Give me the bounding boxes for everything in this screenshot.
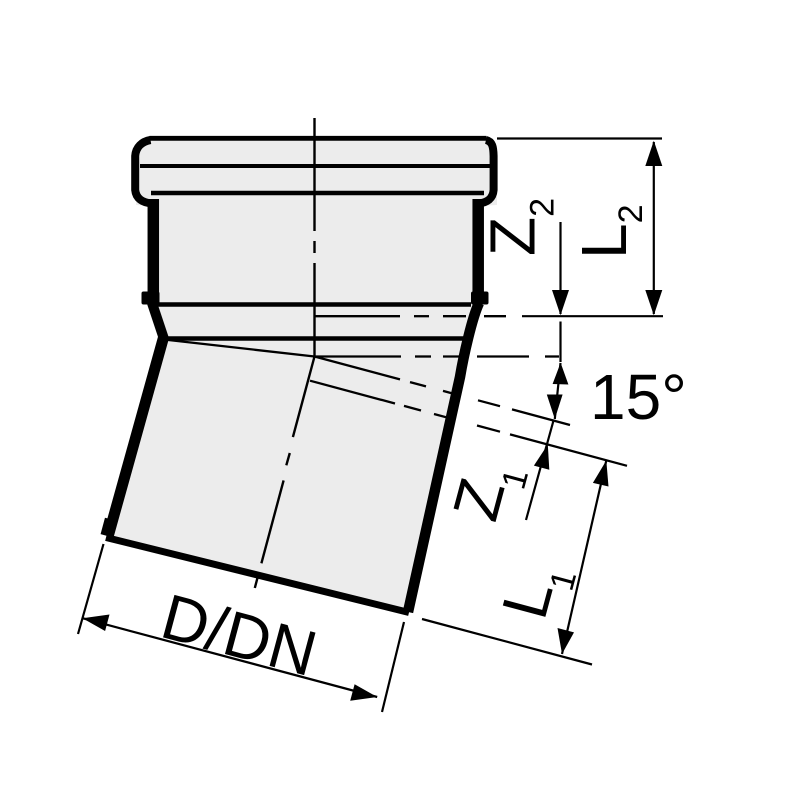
svg-text:15°: 15° bbox=[590, 361, 687, 433]
